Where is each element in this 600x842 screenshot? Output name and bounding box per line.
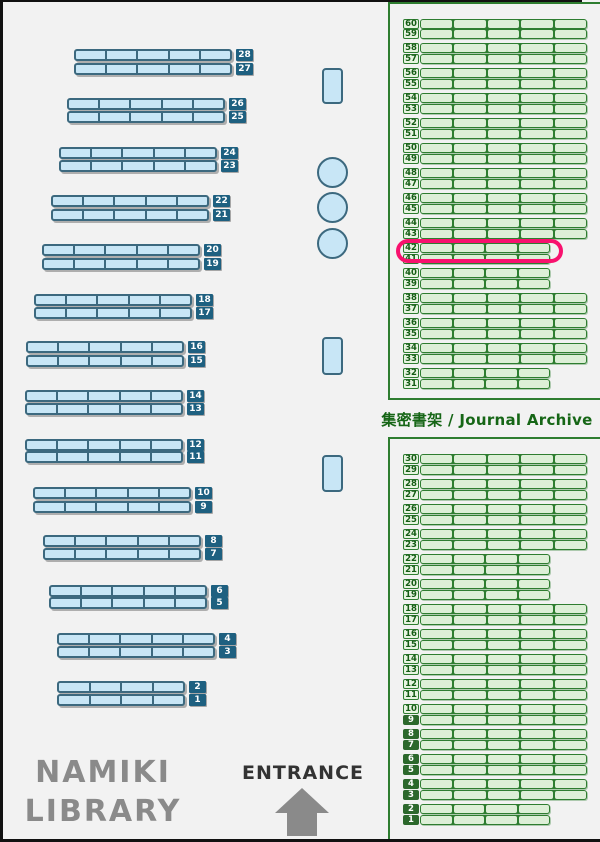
shelf-segment	[120, 683, 152, 691]
shelf-number-label-2: 2	[189, 681, 206, 693]
bookshelf-10	[33, 487, 191, 499]
shelf-segment	[53, 197, 82, 205]
shelf-number-label-8: 8	[205, 535, 222, 547]
shelf-number-label-16: 16	[188, 341, 205, 353]
shelf-segment	[57, 343, 88, 351]
shelf-number-label-27: 27	[236, 63, 253, 75]
bookshelf-4	[57, 633, 215, 645]
shelf-segment	[151, 635, 182, 643]
bookshelf-17	[34, 307, 192, 319]
shelf-segment	[143, 587, 174, 595]
study-table	[322, 68, 343, 104]
library-name-line1: NAMIKI	[18, 753, 188, 792]
shelf-segment	[36, 309, 65, 317]
shelf-segment	[61, 149, 90, 157]
shelf-segment	[27, 392, 56, 400]
shelf-number-label-12: 12	[187, 439, 204, 451]
shelf-segment	[73, 260, 104, 268]
bookshelf-7	[43, 548, 201, 560]
shelf-segment	[136, 260, 167, 268]
shelf-segment	[161, 113, 192, 121]
shelf-segment	[119, 441, 150, 449]
shelf-segment	[89, 683, 121, 691]
shelf-segment	[56, 441, 87, 449]
bookshelf-20	[42, 244, 200, 256]
shelf-segment	[90, 162, 121, 170]
shelf-segment	[59, 635, 88, 643]
shelf-segment	[111, 587, 142, 595]
shelf-segment	[120, 696, 152, 704]
shelf-segment	[145, 211, 176, 219]
shelf-segment	[59, 696, 89, 704]
shelf-segment	[88, 648, 119, 656]
bookshelf-2	[57, 681, 185, 693]
shelf-segment	[161, 100, 192, 108]
library-name: NAMIKI LIBRARY	[18, 753, 188, 831]
shelf-segment	[176, 211, 207, 219]
shelf-segment	[128, 309, 159, 317]
library-name-line2: LIBRARY	[18, 792, 188, 831]
shelf-segment	[56, 405, 87, 413]
shelf-segment	[89, 696, 121, 704]
shelf-segment	[150, 453, 181, 461]
study-table	[322, 337, 343, 375]
study-table	[322, 455, 343, 492]
shelf-segment	[119, 453, 150, 461]
shelf-number-label-9: 9	[195, 501, 212, 513]
shelf-segment	[199, 51, 230, 59]
journal-archive-lower-box	[388, 437, 600, 842]
bookshelf-1	[57, 694, 185, 706]
bookshelf-9	[33, 501, 191, 513]
shelf-segment	[158, 489, 189, 497]
shelf-number-label-14: 14	[187, 390, 204, 402]
shelf-number-label-19: 19	[204, 258, 221, 270]
shelf-number-label-24: 24	[221, 147, 238, 159]
shelf-segment	[56, 392, 87, 400]
shelf-segment	[159, 309, 190, 317]
shelf-segment	[105, 537, 136, 545]
shelf-segment	[136, 65, 167, 73]
shelf-segment	[53, 211, 82, 219]
shelf-segment	[35, 489, 64, 497]
shelf-segment	[98, 100, 129, 108]
shelf-number-label-21: 21	[213, 209, 230, 221]
shelf-segment	[105, 550, 136, 558]
shelf-segment	[51, 599, 80, 607]
shelf-segment	[119, 648, 150, 656]
shelf-segment	[174, 587, 205, 595]
bookshelf-22	[51, 195, 209, 207]
shelf-segment	[127, 489, 158, 497]
shelf-segment	[129, 113, 160, 121]
map-frame-left	[0, 0, 3, 842]
shelf-segment	[158, 503, 189, 511]
shelf-segment	[151, 343, 182, 351]
shelf-segment	[35, 503, 64, 511]
bookshelf-21	[51, 209, 209, 221]
shelf-segment	[168, 550, 199, 558]
shelf-segment	[27, 441, 56, 449]
shelf-number-label-28: 28	[236, 49, 253, 61]
bookshelf-27	[74, 63, 232, 75]
bookshelf-19	[42, 258, 200, 270]
shelf-segment	[153, 149, 184, 157]
round-table	[317, 192, 348, 223]
bookshelf-28	[74, 49, 232, 61]
shelf-segment	[192, 113, 223, 121]
shelf-segment	[120, 343, 151, 351]
shelf-segment	[76, 65, 105, 73]
shelf-segment	[182, 648, 213, 656]
bookshelf-18	[34, 294, 192, 306]
entrance-label: ENTRANCE	[228, 762, 378, 784]
shelf-segment	[104, 260, 135, 268]
shelf-segment	[168, 65, 199, 73]
entrance-arrow-icon	[275, 788, 329, 836]
shelf-segment	[88, 357, 119, 365]
shelf-segment	[27, 453, 56, 461]
arrow-stem	[287, 812, 317, 836]
shelf-number-label-26: 26	[229, 98, 246, 110]
shelf-segment	[128, 296, 159, 304]
shelf-segment	[80, 599, 111, 607]
shelf-segment	[95, 503, 126, 511]
shelf-segment	[159, 296, 190, 304]
shelf-segment	[90, 149, 121, 157]
bookshelf-16	[26, 341, 184, 353]
shelf-segment	[87, 453, 118, 461]
shelf-number-label-13: 13	[187, 403, 204, 415]
shelf-segment	[56, 453, 87, 461]
bookshelf-5	[49, 597, 207, 609]
shelf-segment	[192, 100, 223, 108]
shelf-segment	[80, 587, 111, 595]
shelf-segment	[64, 489, 95, 497]
shelf-segment	[119, 392, 150, 400]
journal-archive-label: 集密書架 / Journal Archive	[374, 409, 600, 430]
map-frame-top	[0, 0, 582, 2]
shelf-number-label-5: 5	[211, 597, 228, 609]
shelf-segment	[150, 405, 181, 413]
shelf-segment	[184, 162, 215, 170]
shelf-segment	[87, 392, 118, 400]
bookshelf-12	[25, 439, 183, 451]
shelf-segment	[113, 211, 144, 219]
shelf-segment	[113, 197, 144, 205]
shelf-number-label-10: 10	[195, 487, 212, 499]
shelf-segment	[69, 100, 98, 108]
shelf-segment	[184, 149, 215, 157]
shelf-segment	[88, 343, 119, 351]
shelf-segment	[136, 51, 167, 59]
shelf-segment	[96, 309, 127, 317]
journal-archive-upper-box	[388, 2, 600, 400]
shelf-segment	[82, 211, 113, 219]
shelf-segment	[65, 309, 96, 317]
shelf-segment	[153, 162, 184, 170]
shelf-number-label-1: 1	[189, 694, 206, 706]
shelf-segment	[74, 537, 105, 545]
shelf-segment	[69, 113, 98, 121]
shelf-segment	[98, 113, 129, 121]
shelf-segment	[119, 635, 150, 643]
bookshelf-13	[25, 403, 183, 415]
shelf-segment	[59, 648, 88, 656]
shelf-segment	[182, 635, 213, 643]
shelf-number-label-25: 25	[229, 111, 246, 123]
shelf-segment	[174, 599, 205, 607]
shelf-segment	[127, 503, 158, 511]
shelf-segment	[88, 635, 119, 643]
shelf-segment	[64, 503, 95, 511]
shelf-segment	[168, 51, 199, 59]
shelf-number-label-23: 23	[221, 160, 238, 172]
shelf-segment	[167, 246, 198, 254]
bookshelf-15	[26, 355, 184, 367]
shelf-segment	[199, 65, 230, 73]
shelf-number-label-4: 4	[219, 633, 236, 645]
shelf-segment	[28, 343, 57, 351]
shelf-number-label-20: 20	[204, 244, 221, 256]
shelf-segment	[143, 599, 174, 607]
shelf-number-label-6: 6	[211, 585, 228, 597]
bookshelf-6	[49, 585, 207, 597]
shelf-segment	[36, 296, 65, 304]
shelf-segment	[176, 197, 207, 205]
bookshelf-23	[59, 160, 217, 172]
shelf-segment	[73, 246, 104, 254]
shelf-segment	[96, 296, 127, 304]
shelf-segment	[57, 357, 88, 365]
shelf-segment	[150, 392, 181, 400]
shelf-segment	[61, 162, 90, 170]
shelf-segment	[145, 197, 176, 205]
shelf-segment	[168, 537, 199, 545]
shelf-number-label-15: 15	[188, 355, 205, 367]
shelf-segment	[151, 648, 182, 656]
shelf-segment	[87, 441, 118, 449]
shelf-segment	[59, 683, 89, 691]
shelf-segment	[151, 357, 182, 365]
shelf-number-label-7: 7	[205, 548, 222, 560]
bookshelf-24	[59, 147, 217, 159]
shelf-number-label-22: 22	[213, 195, 230, 207]
shelf-segment	[120, 357, 151, 365]
shelf-segment	[137, 537, 168, 545]
bookshelf-25	[67, 111, 225, 123]
shelf-segment	[87, 405, 118, 413]
shelf-segment	[121, 162, 152, 170]
shelf-number-label-17: 17	[196, 307, 213, 319]
shelf-segment	[65, 296, 96, 304]
shelf-number-label-11: 11	[187, 451, 204, 463]
shelf-segment	[28, 357, 57, 365]
bookshelf-14	[25, 390, 183, 402]
shelf-segment	[129, 100, 160, 108]
shelf-segment	[27, 405, 56, 413]
bookshelf-8	[43, 535, 201, 547]
shelf-segment	[51, 587, 80, 595]
shelf-segment	[76, 51, 105, 59]
bookshelf-11	[25, 451, 183, 463]
shelf-number-label-3: 3	[219, 646, 236, 658]
shelf-segment	[167, 260, 198, 268]
shelf-segment	[152, 683, 184, 691]
shelf-segment	[104, 246, 135, 254]
shelf-segment	[44, 246, 73, 254]
shelf-number-label-18: 18	[196, 294, 213, 306]
shelf-segment	[74, 550, 105, 558]
arrow-head	[275, 788, 329, 813]
shelf-segment	[105, 51, 136, 59]
highlighted-shelf-42-marker	[396, 239, 563, 263]
round-table	[317, 157, 348, 188]
shelf-segment	[137, 550, 168, 558]
shelf-segment	[119, 405, 150, 413]
shelf-segment	[44, 260, 73, 268]
shelf-segment	[121, 149, 152, 157]
bookshelf-3	[57, 646, 215, 658]
shelf-segment	[82, 197, 113, 205]
shelf-segment	[111, 599, 142, 607]
shelf-segment	[150, 441, 181, 449]
shelf-segment	[105, 65, 136, 73]
shelf-segment	[152, 696, 184, 704]
shelf-segment	[136, 246, 167, 254]
round-table	[317, 228, 348, 259]
bookshelf-26	[67, 98, 225, 110]
shelf-segment	[95, 489, 126, 497]
shelf-segment	[45, 550, 74, 558]
shelf-segment	[45, 537, 74, 545]
